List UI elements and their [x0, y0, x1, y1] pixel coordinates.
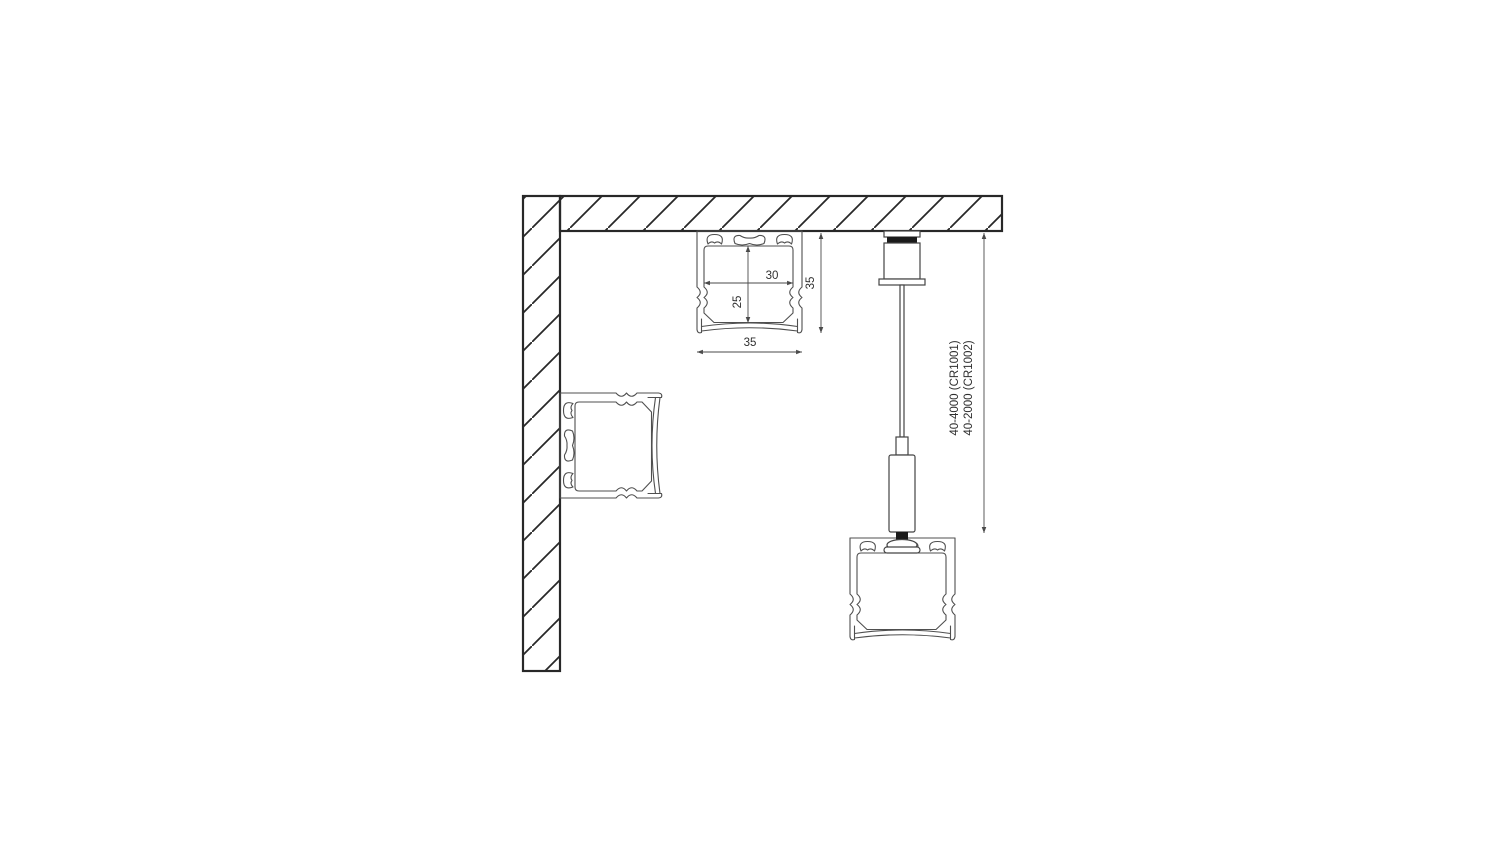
dim-label-inner-height: 25: [732, 296, 744, 309]
ceiling-section-hatched: [560, 196, 1002, 231]
wall-mounted-profile: [560, 393, 662, 498]
cable-gripper-neck: [896, 437, 908, 455]
cable-gripper-body: [889, 455, 915, 532]
dim-label-profile-width: 35: [744, 337, 757, 349]
dim-suspension-length: 40-4000 (CR1001) 40-2000 (CR1002): [949, 233, 984, 533]
mounting-diagram: 30 25 35 35 40-4000 (CR1001) 40-2000 (CR…: [0, 0, 1500, 845]
ceiling-mount-ring: [887, 237, 917, 243]
ceiling-mounted-profile: [697, 231, 802, 333]
profile-mount-plate: [884, 547, 920, 553]
dim-profile-width: 35: [697, 337, 802, 352]
dim-label-profile-height: 35: [805, 277, 817, 290]
ceiling-mount-flange: [879, 279, 925, 285]
ceiling-mount-plate: [884, 231, 920, 237]
suspension-cable: [900, 285, 904, 437]
ceiling-mount-canopy: [884, 243, 920, 279]
dim-profile-height: 35: [805, 233, 821, 333]
dim-label-suspension-length-1: 40-4000 (CR1001): [949, 340, 961, 435]
diagram-canvas: 30 25 35 35 40-4000 (CR1001) 40-2000 (CR…: [0, 0, 1500, 845]
dim-label-inner-width: 30: [766, 270, 779, 282]
dim-label-suspension-length-2: 40-2000 (CR1002): [963, 340, 975, 435]
suspension-kit: [879, 231, 925, 553]
wall-section-hatched: [523, 196, 560, 671]
